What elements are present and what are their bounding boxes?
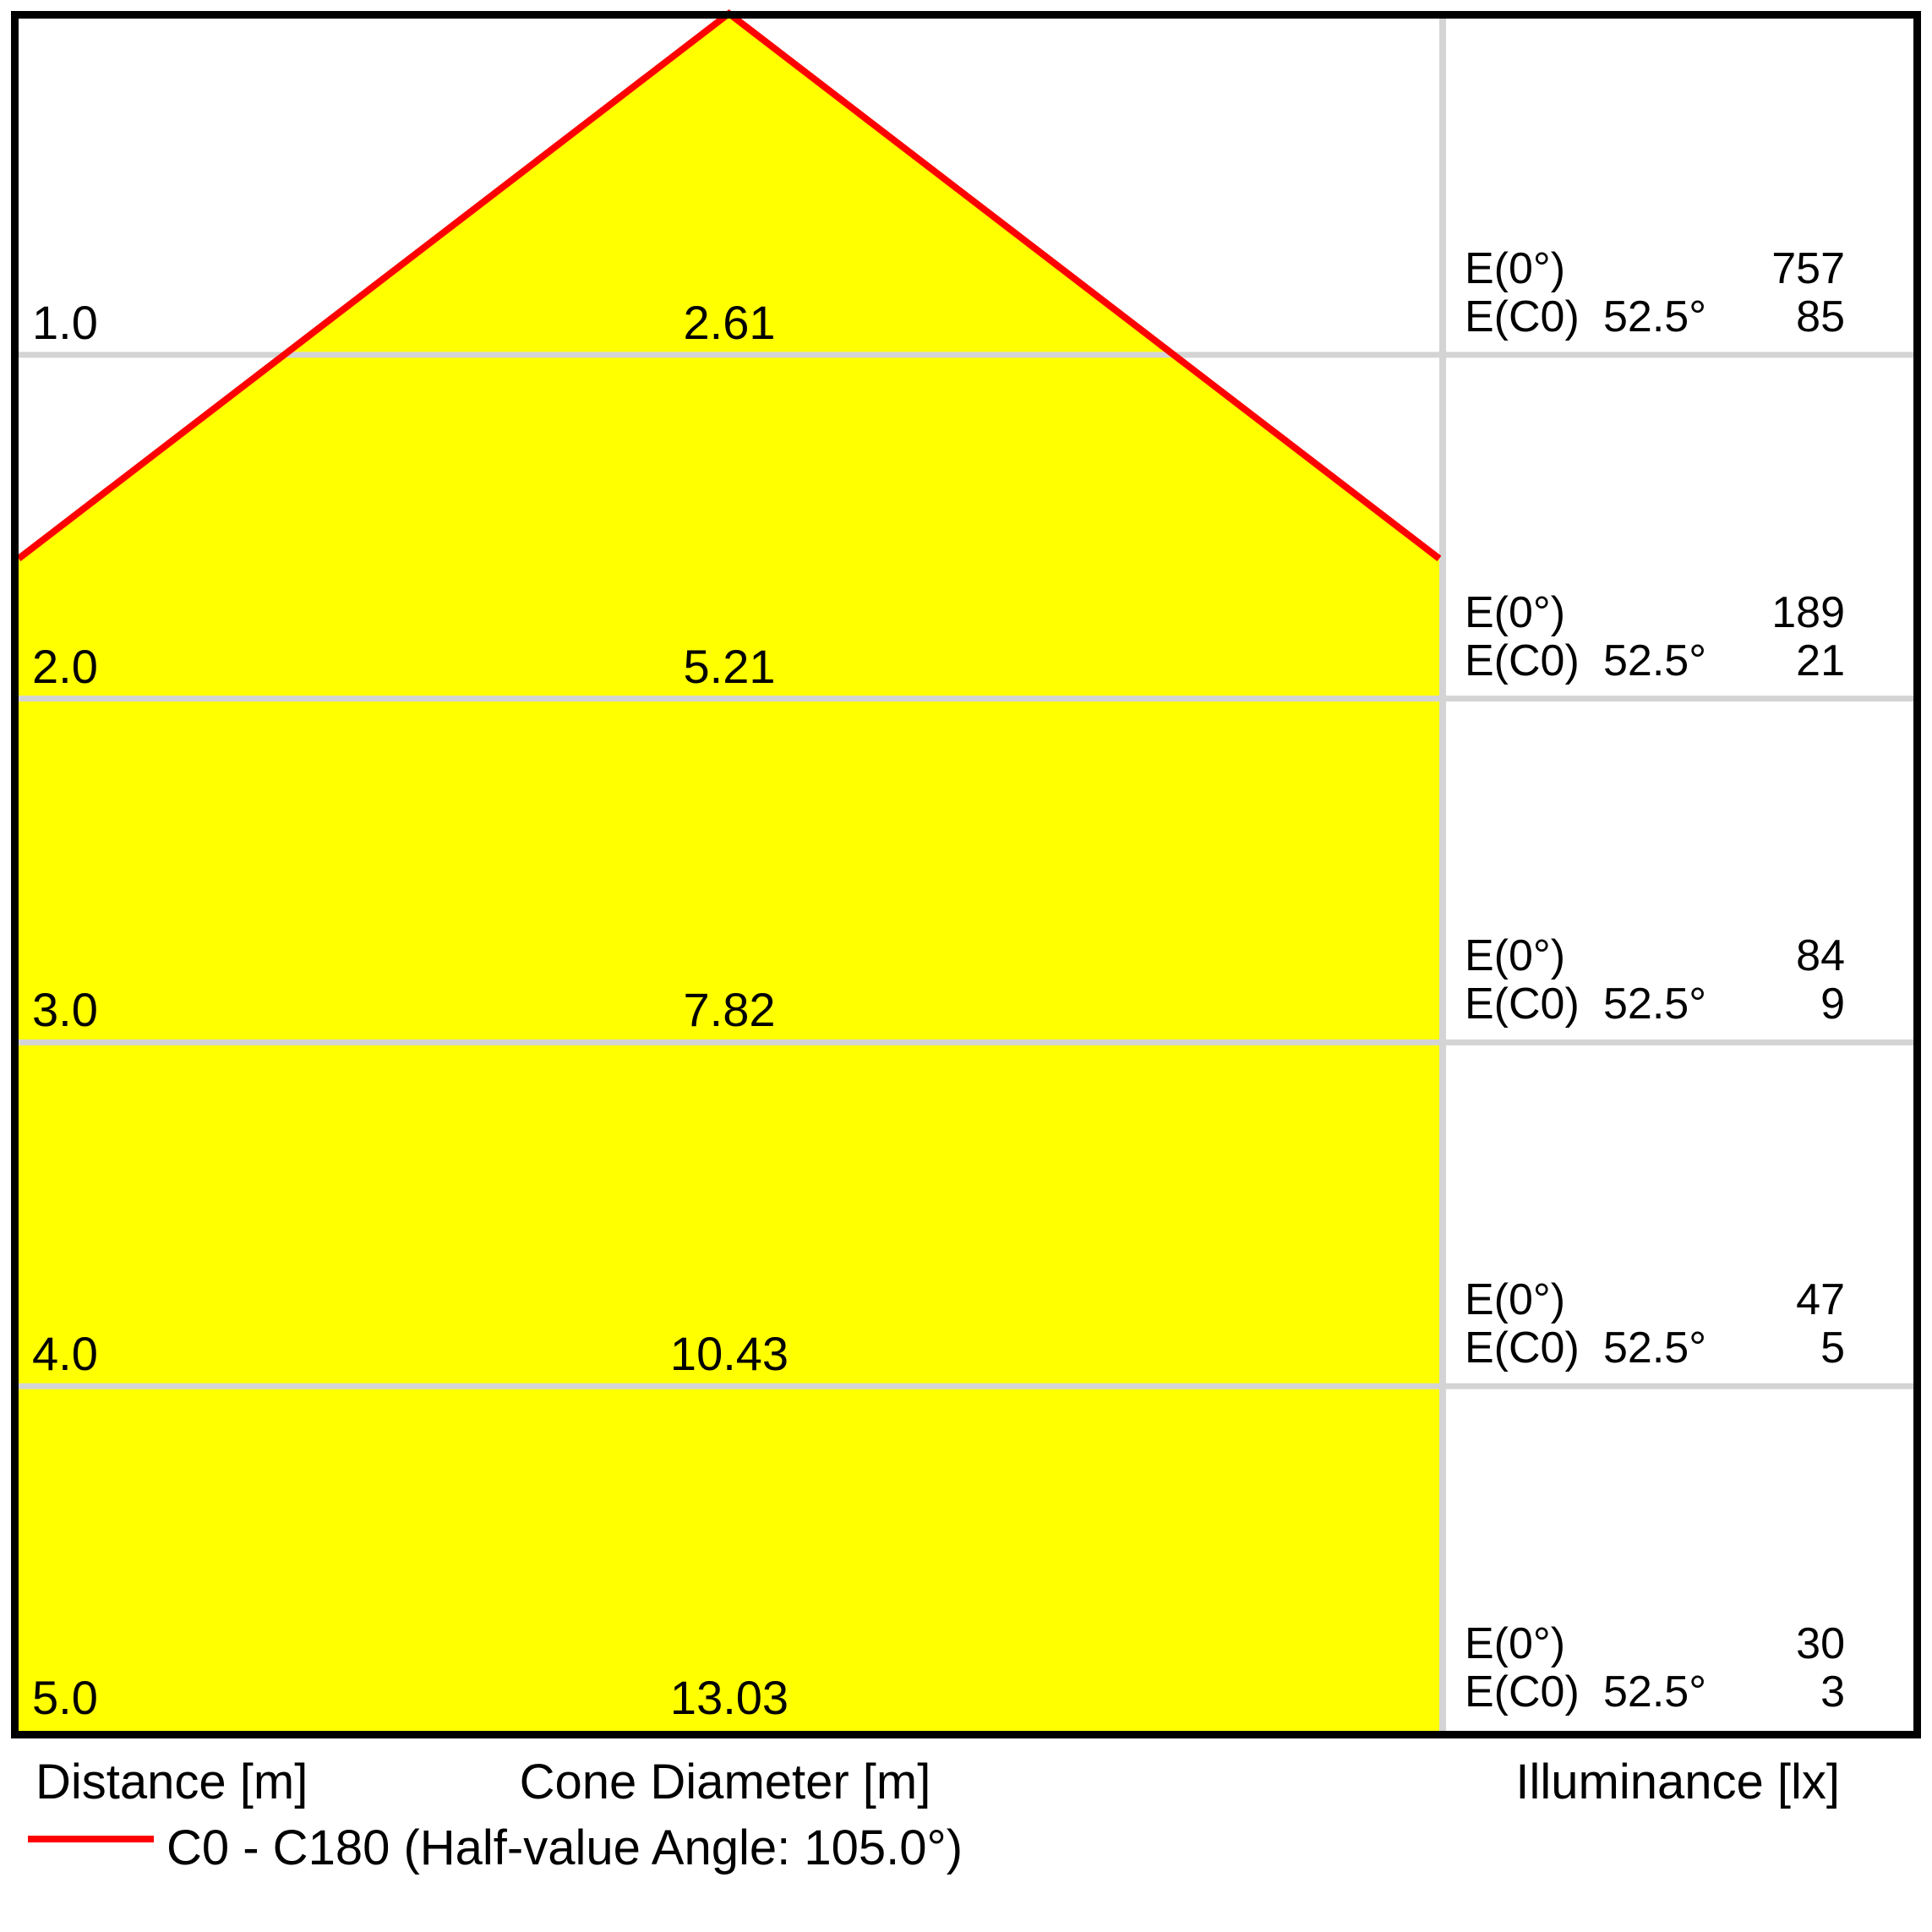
ec0-value: 9: [1718, 980, 1845, 1029]
distance-label-row5: 5.0: [32, 1672, 98, 1724]
illuminance-block-row3: E(0°) 84 E(C0) 52.5° 9: [1465, 932, 1845, 1029]
illuminance-block-row5: E(0°) 30 E(C0) 52.5° 3: [1465, 1620, 1845, 1716]
distance-label-row3: 3.0: [32, 984, 98, 1036]
illuminance-block-row2: E(0°) 189 E(C0) 52.5° 21: [1465, 589, 1845, 685]
ec0-label: E(C0): [1465, 980, 1591, 1029]
cone-diameter-label-row4: 10.43: [670, 1328, 789, 1380]
legend-line-swatch: [28, 1836, 154, 1842]
ec0-value: 21: [1718, 637, 1845, 685]
illuminance-axis-title: Illuminance [lx]: [1515, 1756, 1840, 1809]
light-cone-fill: [19, 14, 1439, 1731]
grid-line-2m: [11, 696, 1921, 701]
ec0-angle: 52.5°: [1591, 1324, 1718, 1373]
cone-diameter-label-row2: 5.21: [684, 641, 776, 693]
distance-label-row1: 1.0: [32, 297, 98, 349]
ec0-label: E(C0): [1465, 1324, 1591, 1373]
ec0-angle: 52.5°: [1591, 293, 1718, 341]
illuminance-column-divider: [1439, 11, 1446, 1738]
cone-diameter-label-row1: 2.61: [684, 297, 776, 349]
e0-label: E(0°): [1465, 932, 1565, 980]
e0-value: 84: [1796, 932, 1845, 980]
e0-value: 30: [1796, 1620, 1845, 1668]
illuminance-block-row1: E(0°) 757 E(C0) 52.5° 85: [1465, 245, 1845, 341]
ec0-value: 3: [1718, 1668, 1845, 1716]
distance-label-row2: 2.0: [32, 641, 98, 693]
e0-value: 47: [1796, 1276, 1845, 1324]
e0-value: 757: [1771, 245, 1845, 293]
ec0-label: E(C0): [1465, 293, 1591, 341]
distance-axis-title: Distance [m]: [35, 1756, 308, 1809]
cone-diameter-axis-title: Cone Diameter [m]: [520, 1756, 931, 1809]
grid-line-3m: [11, 1040, 1921, 1045]
ec0-value: 5: [1718, 1324, 1845, 1373]
light-cone-diagram: 1.0 2.61 E(0°) 757 E(C0) 52.5° 85 2.0 5.…: [0, 0, 1932, 1932]
ec0-angle: 52.5°: [1591, 1668, 1718, 1716]
ec0-value: 85: [1718, 293, 1845, 341]
ec0-angle: 52.5°: [1591, 980, 1718, 1029]
cone-diameter-label-row3: 7.82: [684, 984, 776, 1036]
e0-label: E(0°): [1465, 1620, 1565, 1668]
ec0-label: E(C0): [1465, 1668, 1591, 1716]
e0-label: E(0°): [1465, 589, 1565, 637]
legend-label: C0 - C180 (Half-value Angle: 105.0°): [166, 1822, 963, 1875]
e0-label: E(0°): [1465, 245, 1565, 293]
grid-line-1m: [11, 352, 1921, 357]
e0-value: 189: [1771, 589, 1845, 637]
e0-label: E(0°): [1465, 1276, 1565, 1324]
illuminance-block-row4: E(0°) 47 E(C0) 52.5° 5: [1465, 1276, 1845, 1373]
distance-label-row4: 4.0: [32, 1328, 98, 1380]
ec0-label: E(C0): [1465, 637, 1591, 685]
ec0-angle: 52.5°: [1591, 637, 1718, 685]
cone-diameter-label-row5: 13.03: [670, 1672, 789, 1724]
grid-line-4m: [11, 1384, 1921, 1389]
